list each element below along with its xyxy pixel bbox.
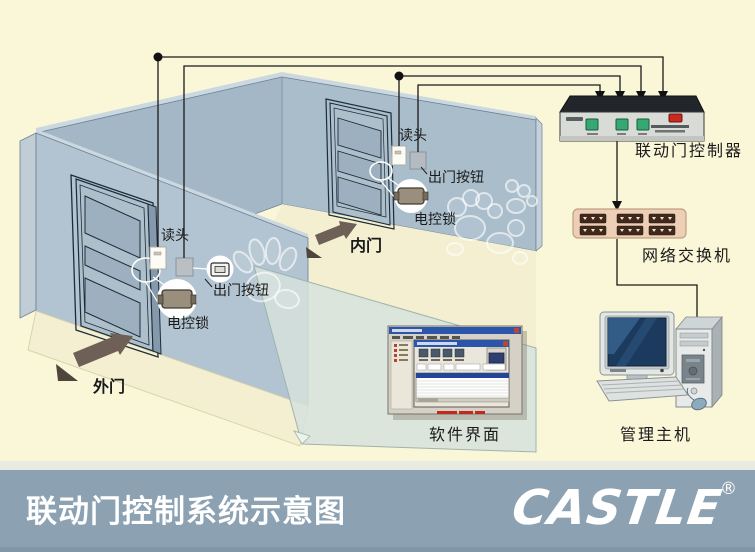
controller-power-switch	[669, 114, 682, 122]
lock-label: 电控锁	[414, 212, 456, 228]
monitor-power-led	[660, 369, 664, 373]
electric-lock	[162, 290, 192, 308]
outer-door-label: 外门	[92, 377, 125, 396]
bottom-banner: 联动门控制系统示意图 CASTLE ®	[0, 461, 755, 552]
wire-junction-dot	[395, 72, 404, 81]
controller-button-caption	[638, 133, 647, 135]
exit-button-label: 出门按钮	[213, 283, 269, 299]
lock-nub	[394, 192, 399, 200]
diagram-canvas: 外门 内门 读头 出门按钮 电控锁 读	[0, 0, 755, 552]
app-title-mark	[392, 329, 422, 332]
controller-button-caption	[587, 133, 598, 135]
monitor-controls	[610, 369, 626, 372]
lock-nub	[423, 192, 428, 200]
panel-slot	[686, 359, 700, 362]
card-reader	[392, 146, 406, 165]
brand-logo-text: CASTLE	[509, 480, 726, 536]
exit-button-label: 出门按钮	[428, 170, 484, 186]
reader-slot	[154, 252, 161, 255]
diagram-title: 联动门控制系统示意图	[26, 494, 346, 530]
lock-label: 电控锁	[167, 316, 209, 332]
wall-end-cap	[536, 118, 542, 251]
close-icon	[503, 341, 508, 346]
registered-trademark-icon: ®	[720, 479, 737, 499]
software-label: 软件界面	[429, 425, 501, 444]
reader-slot	[395, 151, 401, 154]
drive-bay	[680, 341, 708, 346]
inner-door	[326, 99, 394, 229]
controller-top	[560, 96, 704, 112]
child-title-mark	[417, 342, 457, 345]
controller-button	[637, 119, 649, 130]
card-reader	[150, 247, 166, 269]
controller-button	[616, 119, 628, 130]
exit-button-icon-inner	[215, 267, 225, 273]
close-icon	[514, 328, 519, 333]
exit-button	[176, 258, 193, 276]
status-text-marks	[437, 411, 485, 414]
reader-label: 读头	[399, 127, 427, 144]
banner-bottom-edge	[0, 547, 755, 552]
inner-door-label: 内门	[350, 236, 382, 255]
panel-knob	[689, 367, 697, 375]
scrollbar-thumb	[418, 399, 438, 402]
controller-button-caption	[617, 133, 626, 135]
controller-button	[586, 119, 598, 130]
tower-side	[712, 317, 722, 407]
controller-label: 联动门控制器	[635, 141, 743, 160]
lock-nub	[191, 295, 196, 304]
wire-junction-dot	[154, 53, 163, 62]
filter-fields	[417, 364, 505, 370]
controller-text-mark	[655, 130, 685, 133]
panel-slot	[686, 378, 700, 380]
side-button	[489, 353, 504, 363]
banner-divider	[0, 461, 755, 470]
network-switch-label: 网络交换机	[642, 246, 732, 265]
controller-text-mark	[651, 125, 689, 128]
controller-brand-mark	[566, 117, 583, 121]
electric-lock	[398, 188, 424, 204]
wall-end-cap	[20, 133, 36, 318]
brand-logo: CASTLE	[509, 480, 726, 536]
reader-label: 读头	[161, 227, 189, 244]
exit-button	[410, 152, 426, 169]
drive-bay	[680, 333, 708, 338]
schematic-page: 外门 内门 读头 出门按钮 电控锁 读	[0, 0, 755, 552]
tower-button	[703, 349, 705, 351]
management-host-label: 管理主机	[620, 425, 692, 444]
lock-nub	[158, 295, 163, 304]
power-button	[691, 388, 697, 394]
table-header	[416, 373, 509, 378]
